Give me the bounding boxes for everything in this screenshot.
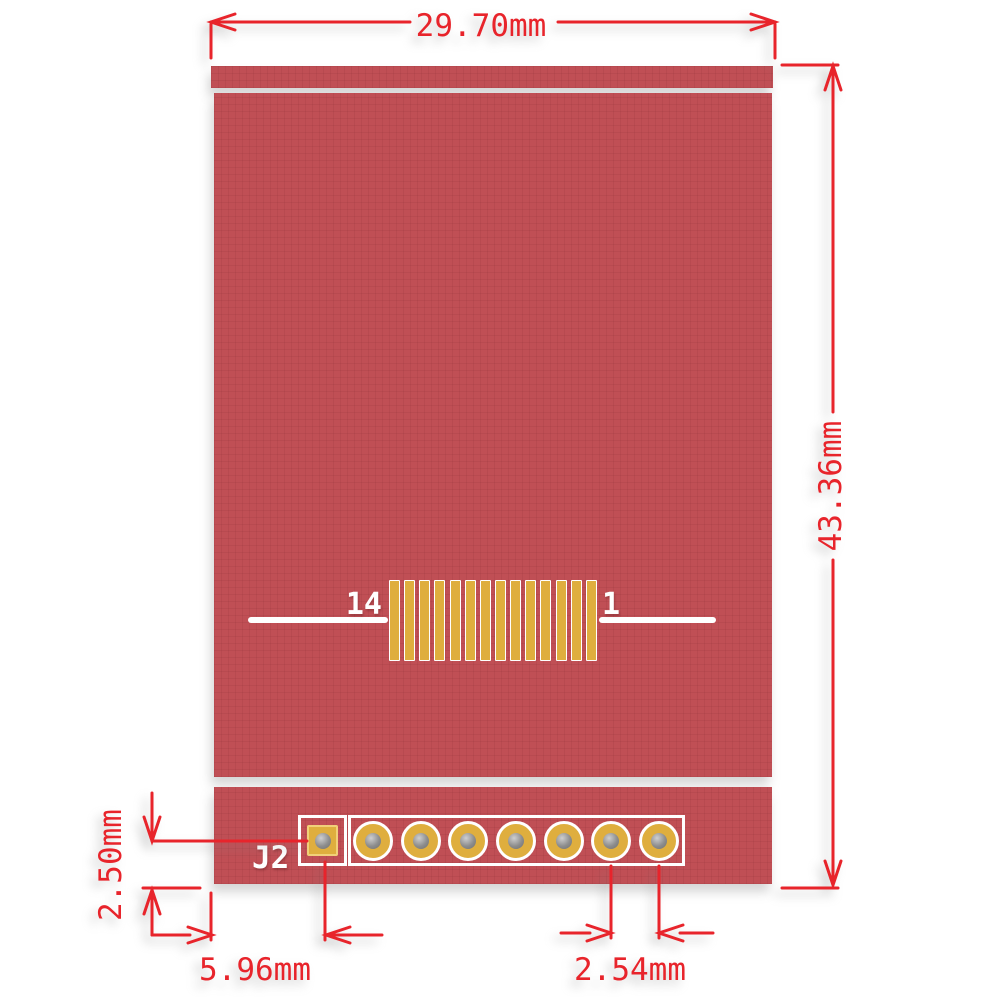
arrow-left-icon <box>326 927 350 943</box>
j2-round-pad <box>544 821 584 861</box>
j2-round-pad-row <box>348 815 685 866</box>
j2-round-pad <box>353 821 393 861</box>
dim-height-line <box>782 65 838 888</box>
j2-round-pad <box>591 821 631 861</box>
fpc-pin <box>404 580 415 661</box>
arrow-right-icon <box>751 14 775 30</box>
arrow-down-icon <box>144 817 160 841</box>
fpc-pin <box>450 580 461 661</box>
fpc-pin <box>465 580 476 661</box>
fpc-pin <box>419 580 430 661</box>
j2-square-pad <box>307 825 338 856</box>
edge-to-pin1-dimension: 5.96mm <box>155 953 355 987</box>
pad-hole <box>365 833 381 849</box>
j2-round-pad <box>496 821 536 861</box>
arrow-right-icon <box>188 927 212 943</box>
dim-width-line <box>211 22 775 58</box>
fpc-pin <box>510 580 521 661</box>
board-width-dimension: 29.70mm <box>381 9 581 43</box>
pad-pitch-dimension: 2.54mm <box>530 953 730 987</box>
pcb-dimension-diagram: 14 1 J2 <box>0 0 1001 1001</box>
fpc-pin <box>571 580 582 661</box>
pad-hole <box>315 833 331 849</box>
board-height-dimension: 43.36mm <box>814 386 848 586</box>
pad-hole <box>651 833 667 849</box>
arrow-down-icon <box>825 861 841 885</box>
j2-pin1-outline-box <box>298 815 347 866</box>
pad-hole <box>460 833 476 849</box>
fpc-pin <box>556 580 567 661</box>
fpc-pin <box>389 580 400 661</box>
connector-pin1-label: 1 <box>602 590 642 620</box>
connector-pin14-label: 14 <box>332 590 382 620</box>
pad-hole <box>603 833 619 849</box>
pcb-main-area <box>214 93 772 777</box>
j2-header-label: J2 <box>252 843 300 874</box>
fpc-pin <box>540 580 551 661</box>
j2-round-pad <box>448 821 488 861</box>
arrow-up-icon <box>144 890 160 914</box>
pad-to-edge-dimension: 2.50mm <box>94 785 128 945</box>
fpc-pin <box>480 580 491 661</box>
arrow-left-icon <box>211 14 235 30</box>
fpc-pin <box>525 580 536 661</box>
arrow-left-icon <box>659 925 683 941</box>
pad-hole <box>556 833 572 849</box>
fpc-connector-pads <box>389 580 597 661</box>
fpc-pin <box>495 580 506 661</box>
fpc-pin <box>434 580 445 661</box>
arrow-up-icon <box>825 66 841 90</box>
fpc-pin <box>586 580 597 661</box>
pad-hole <box>413 833 429 849</box>
arrow-right-icon <box>587 925 611 941</box>
j2-round-pad <box>639 821 679 861</box>
pad-hole <box>508 833 524 849</box>
pcb-top-edge-strip <box>211 66 773 88</box>
j2-round-pad <box>401 821 441 861</box>
